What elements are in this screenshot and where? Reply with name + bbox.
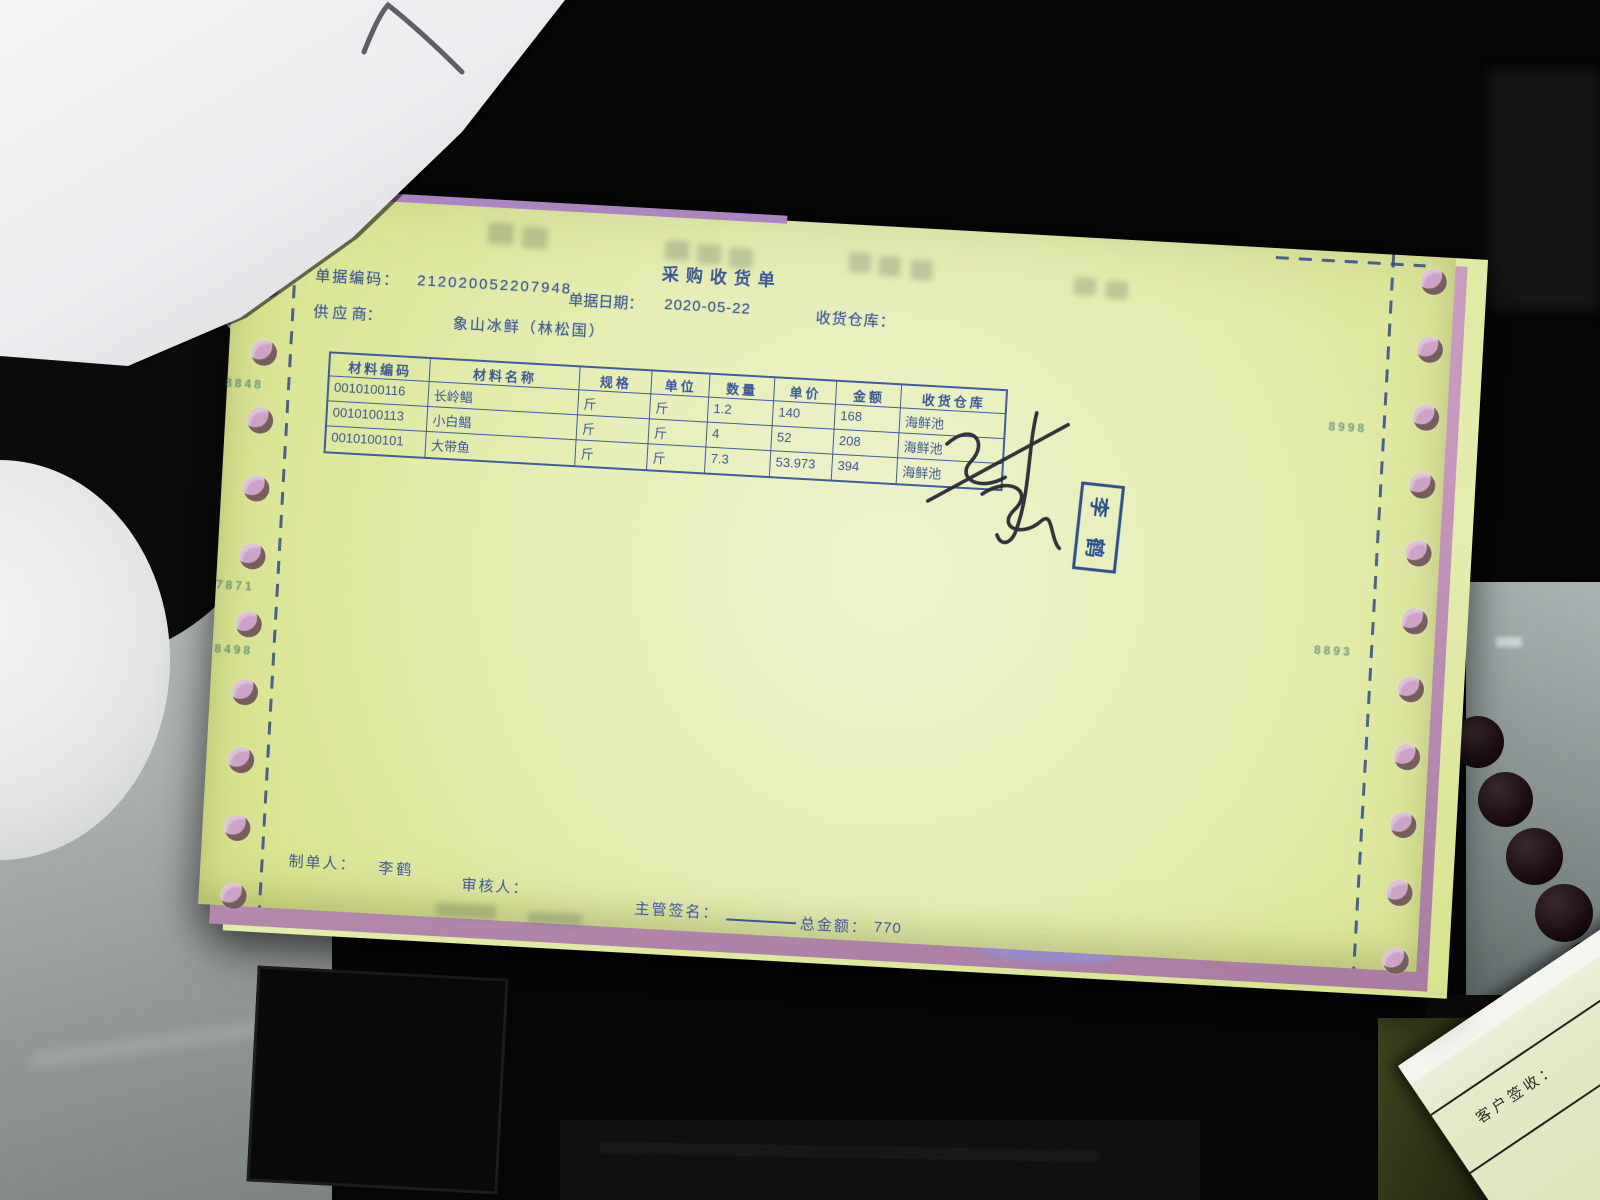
ghost-print xyxy=(487,222,514,245)
pen-mark-7 xyxy=(350,0,480,90)
reflection-streak xyxy=(31,1020,290,1066)
pink-sliver xyxy=(388,193,788,223)
ghost-print xyxy=(910,260,933,281)
tractor-hole xyxy=(235,611,262,638)
supplier-value: 象山冰鲜（林松国） xyxy=(452,312,606,342)
printer-groove xyxy=(247,966,509,1195)
margin-number-mark: 8498 xyxy=(214,641,253,657)
tractor-hole xyxy=(1390,811,1417,838)
dark-object-top-right xyxy=(1488,70,1600,310)
ghost-print xyxy=(436,902,497,919)
tractor-hole xyxy=(1386,879,1413,906)
total-value: 770 xyxy=(873,919,902,938)
table-cell: 140 xyxy=(773,401,836,429)
supplier-label: 供 应 商： xyxy=(313,300,382,325)
tractor-hole xyxy=(239,543,266,570)
table-cell: 168 xyxy=(835,405,901,434)
margin-number-mark: 8893 xyxy=(1314,643,1353,659)
tractor-hole xyxy=(1420,268,1447,295)
perforation-line-right xyxy=(1352,255,1395,969)
total-label: 总金额： xyxy=(799,913,868,938)
tractor-hole xyxy=(1409,472,1436,499)
table-cell: 208 xyxy=(833,430,899,459)
perforation-line-top xyxy=(1276,256,1426,267)
margin-number-mark: 8848 xyxy=(225,376,264,392)
table-cell: 4 xyxy=(706,423,772,452)
photo-of-receipt: 客户签收： 店 名 88487871849889988893 xyxy=(0,0,1600,1200)
ghost-print xyxy=(878,256,901,277)
tractor-hole xyxy=(220,882,247,909)
table-cell: 斤 xyxy=(648,419,707,447)
table-cell: 7.3 xyxy=(705,448,771,477)
tractor-hole xyxy=(227,746,254,773)
maker-value: 李鹤 xyxy=(378,857,415,880)
bead xyxy=(1535,884,1593,942)
tractor-hole xyxy=(1382,947,1409,974)
doc-no-value: 212020052207948 xyxy=(417,272,573,298)
maker-label: 制单人： xyxy=(288,850,357,875)
tractor-hole xyxy=(1405,540,1432,567)
table-cell: 斤 xyxy=(650,394,709,422)
bead xyxy=(1506,828,1563,885)
receipt-sheet: 88487871849889988893 采购收货单 单据编码： 2120200… xyxy=(198,190,1456,972)
margin-number-mark: 8998 xyxy=(1328,419,1367,435)
ghost-print xyxy=(1105,281,1128,300)
tractor-hole xyxy=(246,407,273,434)
handwritten-signature xyxy=(909,400,1097,560)
items-table: 材料编码材料名称规格单位数量单价金额收货仓库0010100116长岭鲳斤斤1.2… xyxy=(323,351,1008,491)
reviewer-label: 审核人： xyxy=(461,874,530,899)
tractor-hole xyxy=(1393,743,1420,770)
table-cell: 394 xyxy=(832,455,898,484)
table-cell: 1.2 xyxy=(708,398,774,427)
table-cell: 斤 xyxy=(575,440,648,469)
ghost-print xyxy=(665,240,690,261)
table-cell: 斤 xyxy=(647,444,706,472)
tractor-hole xyxy=(1401,608,1428,635)
paper-stack: 88487871849889988893 采购收货单 单据编码： 2120200… xyxy=(198,190,1456,972)
signature-blank-line xyxy=(726,918,796,924)
supervisor-label: 主管签名： xyxy=(634,897,720,923)
warehouse-label: 收货仓库： xyxy=(815,306,896,331)
tractor-hole xyxy=(224,814,251,841)
tractor-hole xyxy=(1412,404,1439,431)
printer-panel xyxy=(560,1120,1200,1200)
table-cell: 53.973 xyxy=(770,451,833,479)
tractor-hole xyxy=(1416,336,1443,363)
table-cell: 0010100101 xyxy=(326,426,427,457)
date-label: 单据日期： xyxy=(568,289,644,314)
bead xyxy=(1478,772,1533,827)
margin-number-mark: 7871 xyxy=(216,577,255,593)
form-title: 采购收货单 xyxy=(661,260,782,292)
tractor-hole xyxy=(1397,676,1424,703)
ghost-print xyxy=(1073,277,1096,296)
tractor-hole xyxy=(243,475,270,502)
tractor-hole xyxy=(250,339,277,366)
ghost-print xyxy=(848,252,871,273)
glare-spot xyxy=(1496,637,1522,647)
tractor-hole xyxy=(231,678,258,705)
date-value: 2020-05-22 xyxy=(664,296,752,318)
table-cell: 52 xyxy=(771,426,834,454)
table-header-cell: 单价 xyxy=(774,378,837,404)
table-header-cell: 单位 xyxy=(651,371,710,397)
doc-no-label: 单据编码： xyxy=(315,264,401,290)
ghost-print xyxy=(521,226,548,249)
